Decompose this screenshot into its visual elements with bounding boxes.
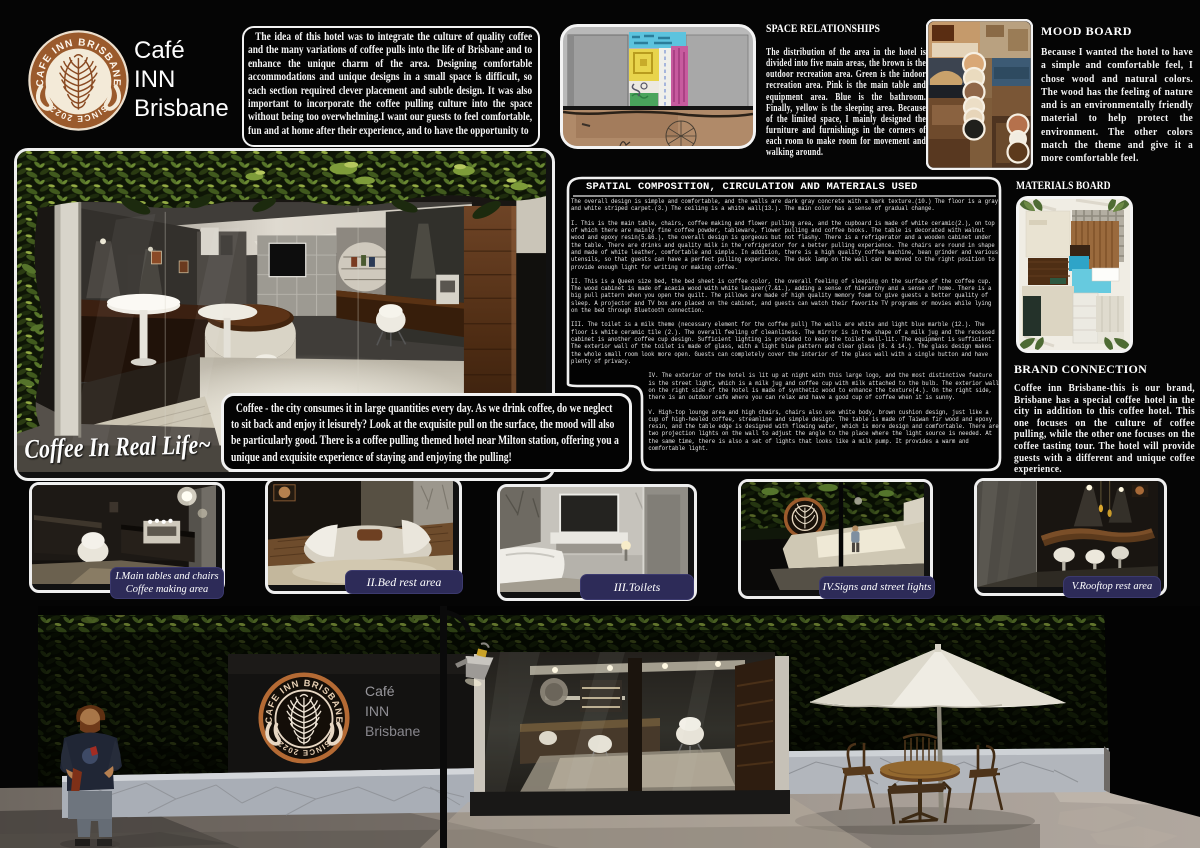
svg-text:INN: INN	[365, 703, 389, 719]
svg-text:Brisbane: Brisbane	[365, 723, 420, 739]
svg-text:Café: Café	[365, 683, 395, 699]
